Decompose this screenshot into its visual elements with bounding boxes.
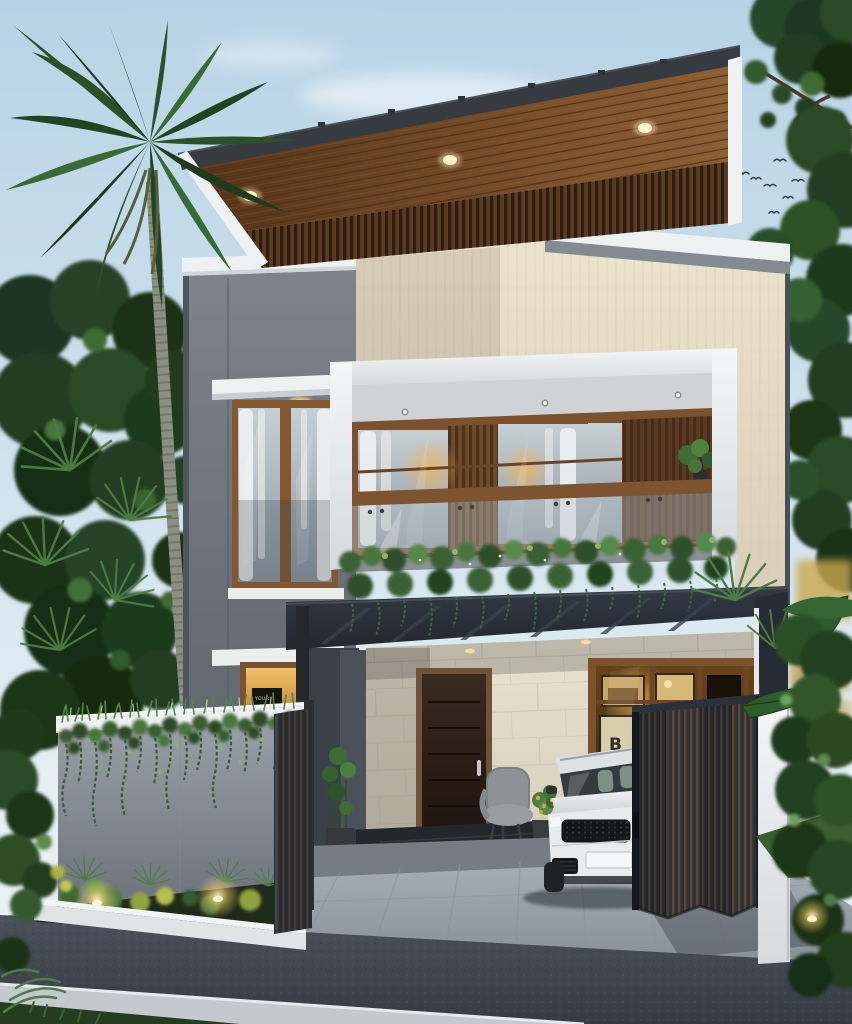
bumper-lip <box>552 876 640 884</box>
framed-picture <box>656 674 694 702</box>
canopy-downlight <box>581 640 591 645</box>
license-plate <box>586 852 632 868</box>
balcony-frame-left <box>330 362 352 570</box>
side-mirror <box>546 786 557 794</box>
window-upper-left <box>212 374 350 599</box>
wall-edge-right <box>785 255 790 605</box>
architectural-rendering: YOUR <box>0 0 852 1024</box>
entrance-door <box>416 668 492 838</box>
wall-edge-left <box>183 262 189 732</box>
front-fence <box>34 693 314 950</box>
car-grille <box>562 820 630 842</box>
cloud <box>200 41 340 69</box>
headlight-left <box>550 817 561 827</box>
window-sill <box>228 588 344 599</box>
balcony-frame-right <box>712 348 737 562</box>
gate-stile <box>632 712 639 910</box>
door-handle <box>477 760 481 776</box>
gate-handle <box>633 812 639 838</box>
wheel <box>544 862 564 892</box>
canopy-downlight <box>465 649 475 654</box>
folding-gate <box>632 694 764 918</box>
roof-trim-right <box>728 56 742 226</box>
scene-canvas: YOUR <box>0 0 852 1024</box>
